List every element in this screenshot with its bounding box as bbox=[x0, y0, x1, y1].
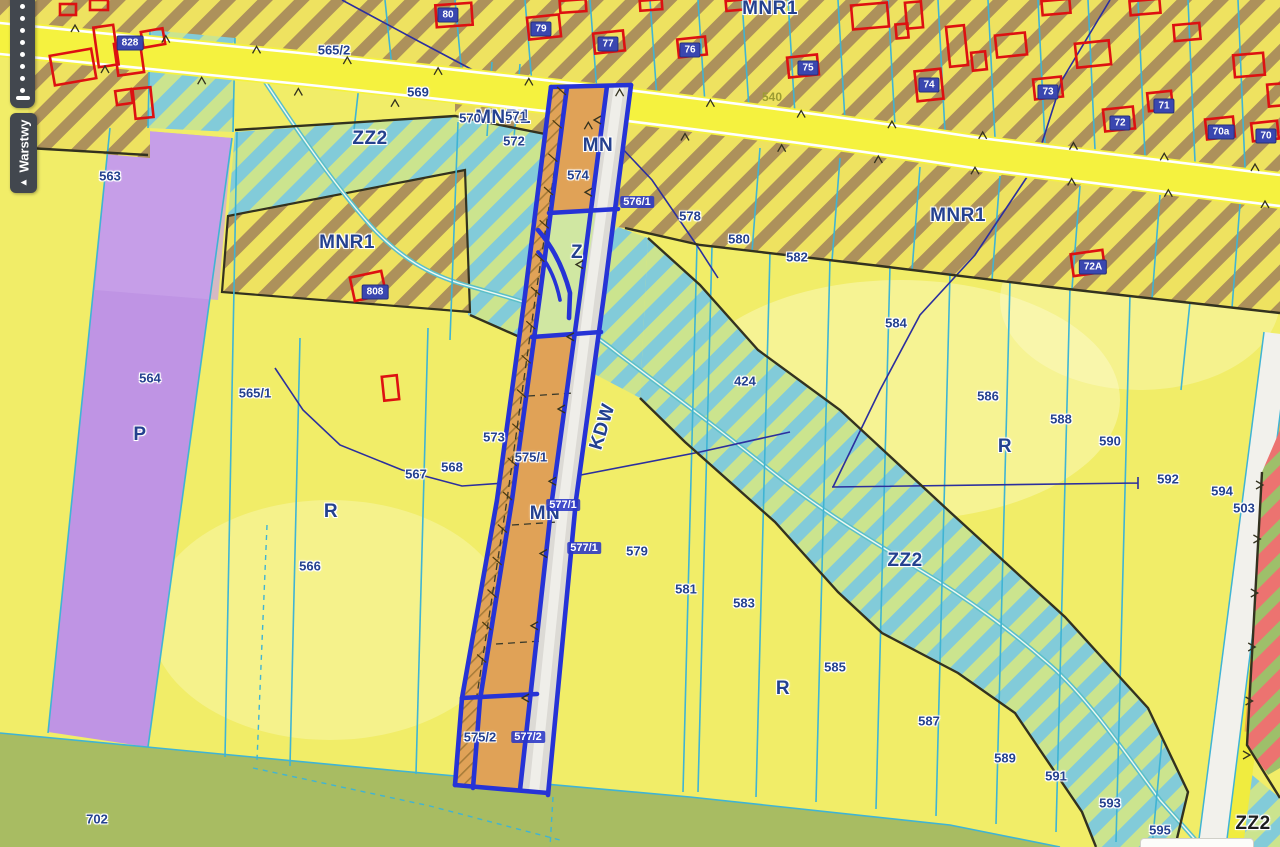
parcel-label: 568 bbox=[441, 460, 463, 475]
parcel-label: 590 bbox=[1099, 434, 1121, 449]
building-label: 72 bbox=[1109, 116, 1130, 131]
toolbar-collapse-handle-icon[interactable] bbox=[16, 96, 30, 100]
zone-label: R bbox=[776, 678, 790, 700]
building-label: 828 bbox=[117, 36, 144, 51]
parcel-label: 579 bbox=[626, 544, 648, 559]
zone-label: P bbox=[133, 424, 146, 446]
toolbar-menu-dots-icon[interactable] bbox=[20, 4, 25, 96]
zone-label: MNR1 bbox=[319, 232, 375, 254]
toolbar-dot-icon[interactable] bbox=[20, 28, 25, 33]
parcel-label: 564 bbox=[139, 371, 161, 386]
parcel-label: 582 bbox=[786, 250, 808, 265]
parcel-label: 593 bbox=[1099, 796, 1121, 811]
parcel-label: 585 bbox=[824, 660, 846, 675]
toolbar-dot-icon[interactable] bbox=[20, 76, 25, 81]
parcel-label: 586 bbox=[977, 389, 999, 404]
parcel-label: 424 bbox=[734, 374, 756, 389]
zone-label: R bbox=[324, 501, 338, 523]
bottom-widget-partial[interactable] bbox=[1140, 838, 1254, 847]
zone-label: MN bbox=[583, 135, 614, 157]
toolbar-dot-icon[interactable] bbox=[20, 52, 25, 57]
building-label: 79 bbox=[530, 22, 551, 37]
map-viewer: ZZ2MNR1MNR1MNR1MNR1MNMNZPRRRZZ2ZZ2KDW563… bbox=[0, 0, 1280, 847]
toolbar-dot-icon[interactable] bbox=[20, 64, 25, 69]
parcel-label: 578 bbox=[679, 209, 701, 224]
layers-tab-label: Warstwy bbox=[16, 119, 31, 172]
labels-layer: ZZ2MNR1MNR1MNR1MNR1MNMNZPRRRZZ2ZZ2KDW563… bbox=[0, 0, 1280, 847]
building-label: 70a bbox=[1208, 125, 1235, 140]
selected-parcel-label: 577/1 bbox=[546, 499, 580, 511]
zone-label: ZZ2 bbox=[1235, 813, 1270, 835]
zone-label: ZZ2 bbox=[352, 128, 387, 150]
building-label: 74 bbox=[918, 78, 939, 93]
map-toolbar[interactable] bbox=[10, 0, 35, 108]
parcel-label: 581 bbox=[675, 582, 697, 597]
building-label: 73 bbox=[1037, 85, 1058, 100]
parcel-label: 565/2 bbox=[318, 43, 351, 58]
zone-label: ZZ2 bbox=[887, 550, 922, 572]
parcel-label: 563 bbox=[99, 169, 121, 184]
parcel-label: 574 bbox=[567, 168, 589, 183]
parcel-label: 565/1 bbox=[239, 386, 272, 401]
selected-parcel-label: 576/1 bbox=[620, 196, 654, 208]
building-label: 808 bbox=[362, 285, 389, 300]
parcel-label: 567 bbox=[405, 467, 427, 482]
parcel-label: 594 bbox=[1211, 484, 1233, 499]
zone-label: KDW bbox=[586, 401, 621, 452]
parcel-label: 575/1 bbox=[515, 450, 548, 465]
toolbar-dot-icon[interactable] bbox=[20, 4, 25, 9]
parcel-label: 587 bbox=[918, 714, 940, 729]
building-label: 70 bbox=[1255, 129, 1276, 144]
parcel-label: 503 bbox=[1233, 501, 1255, 516]
parcel-label: 595 bbox=[1149, 823, 1171, 838]
building-label: 77 bbox=[597, 37, 618, 52]
parcel-label: 575/2 bbox=[464, 730, 497, 745]
zone-label: MNR1 bbox=[742, 0, 798, 20]
parcel-label: 569 bbox=[407, 85, 429, 100]
parcel-label: 584 bbox=[885, 316, 907, 331]
road-label: 540 bbox=[762, 90, 782, 104]
parcel-label: 580 bbox=[728, 232, 750, 247]
parcel-label: 592 bbox=[1157, 472, 1179, 487]
building-label: 75 bbox=[797, 61, 818, 76]
building-label: 80 bbox=[437, 8, 458, 23]
parcel-label: 571 bbox=[505, 109, 527, 124]
parcel-label: 588 bbox=[1050, 412, 1072, 427]
selected-parcel-label: 577/1 bbox=[567, 542, 601, 554]
parcel-label: 583 bbox=[733, 596, 755, 611]
building-label: 76 bbox=[679, 43, 700, 58]
selected-parcel-label: 577/2 bbox=[511, 731, 545, 743]
toolbar-dot-icon[interactable] bbox=[20, 40, 25, 45]
parcel-label: 572 bbox=[503, 134, 525, 149]
building-label: 72A bbox=[1079, 260, 1107, 275]
parcel-label: 589 bbox=[994, 751, 1016, 766]
zone-label: MNR1 bbox=[930, 205, 986, 227]
expand-left-icon: ▲ bbox=[18, 177, 29, 187]
zone-label: Z bbox=[571, 242, 583, 264]
layers-tab[interactable]: ▲ Warstwy bbox=[10, 113, 37, 193]
zone-label: R bbox=[998, 436, 1012, 458]
parcel-label: 702 bbox=[86, 812, 108, 827]
toolbar-dot-icon[interactable] bbox=[20, 16, 25, 21]
parcel-label: 591 bbox=[1045, 769, 1067, 784]
parcel-label: 566 bbox=[299, 559, 321, 574]
toolbar-dot-icon[interactable] bbox=[20, 88, 25, 93]
parcel-label: 573 bbox=[483, 430, 505, 445]
parcel-label: 570 bbox=[459, 111, 481, 126]
building-label: 71 bbox=[1153, 99, 1174, 114]
